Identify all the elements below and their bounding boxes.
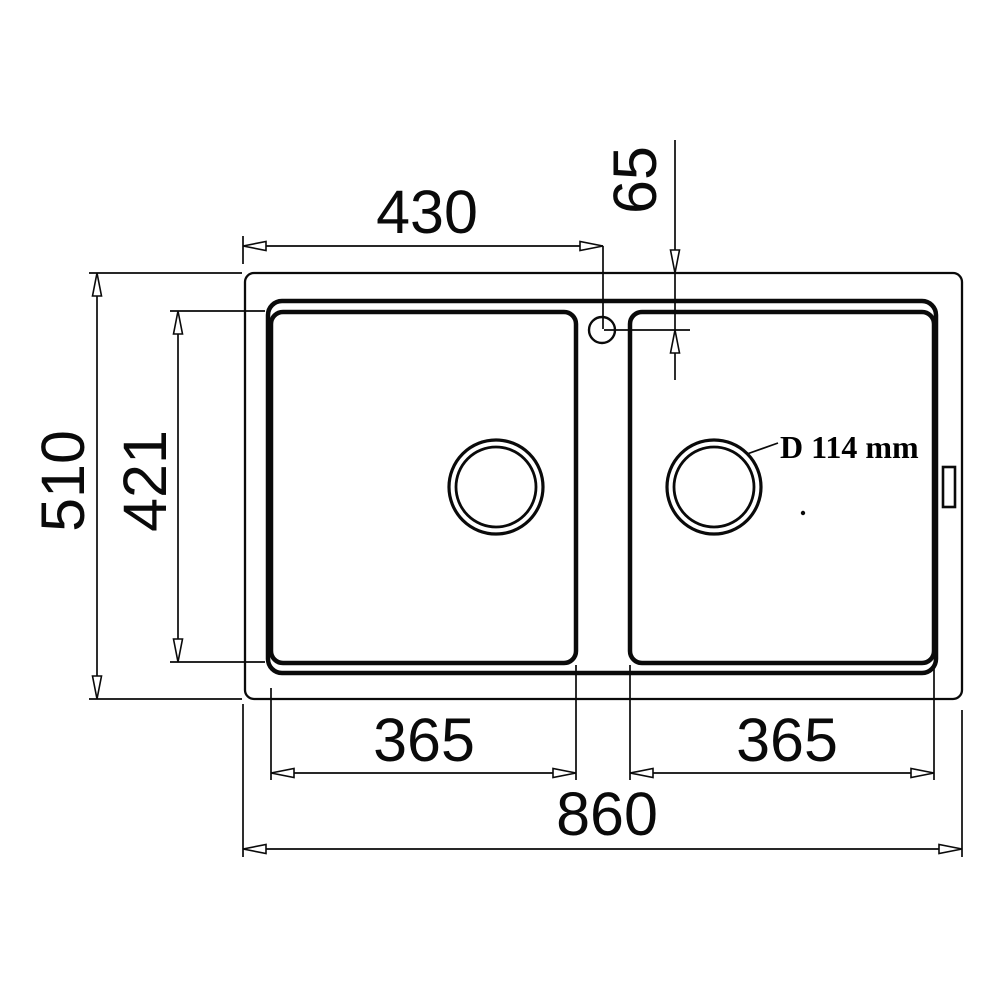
dim-65-arrow-down (671, 250, 680, 273)
right-drain-outer (667, 440, 761, 534)
dim-365R-arrow-right (911, 769, 934, 778)
right-drain-inner (674, 447, 754, 527)
dim-510-arrow-bottom (93, 676, 102, 699)
dim-365R-arrow-left (630, 769, 653, 778)
drain-diameter-label: D 114 mm (780, 429, 919, 465)
dim-label-365-left: 365 (373, 706, 475, 774)
dim-label-430: 430 (376, 178, 478, 246)
dim-430-arrow-right (580, 242, 603, 251)
dim-510-arrow-top (93, 273, 102, 296)
dim-365L-arrow-right (553, 769, 576, 778)
dim-365L-arrow-left (271, 769, 294, 778)
left-drain-inner (456, 447, 536, 527)
dim-65-arrow-up (671, 330, 680, 353)
dim-label-365-right: 365 (736, 706, 838, 774)
sink-outer-outline (245, 273, 962, 699)
left-bowl-outline (271, 312, 576, 663)
sink-rim-outline (268, 301, 936, 673)
drawing-canvas: 430 65 510 421 365 365 (0, 0, 1000, 1000)
dim-430-arrow-left (243, 242, 266, 251)
left-drain-outer (449, 440, 543, 534)
overflow-slot (943, 467, 955, 507)
dim-label-421: 421 (111, 430, 179, 532)
dim-421-arrow-top (174, 311, 183, 334)
dim-label-860: 860 (556, 780, 658, 848)
speck-dot (801, 511, 805, 515)
sink-technical-drawing: 430 65 510 421 365 365 (0, 0, 1000, 1000)
dim-label-65: 65 (601, 146, 669, 214)
dim-421-arrow-bottom (174, 639, 183, 662)
dim-860-arrow-left (243, 845, 266, 854)
drain-callout-leader (747, 443, 778, 454)
dim-label-510: 510 (29, 430, 97, 532)
dim-860-arrow-right (939, 845, 962, 854)
